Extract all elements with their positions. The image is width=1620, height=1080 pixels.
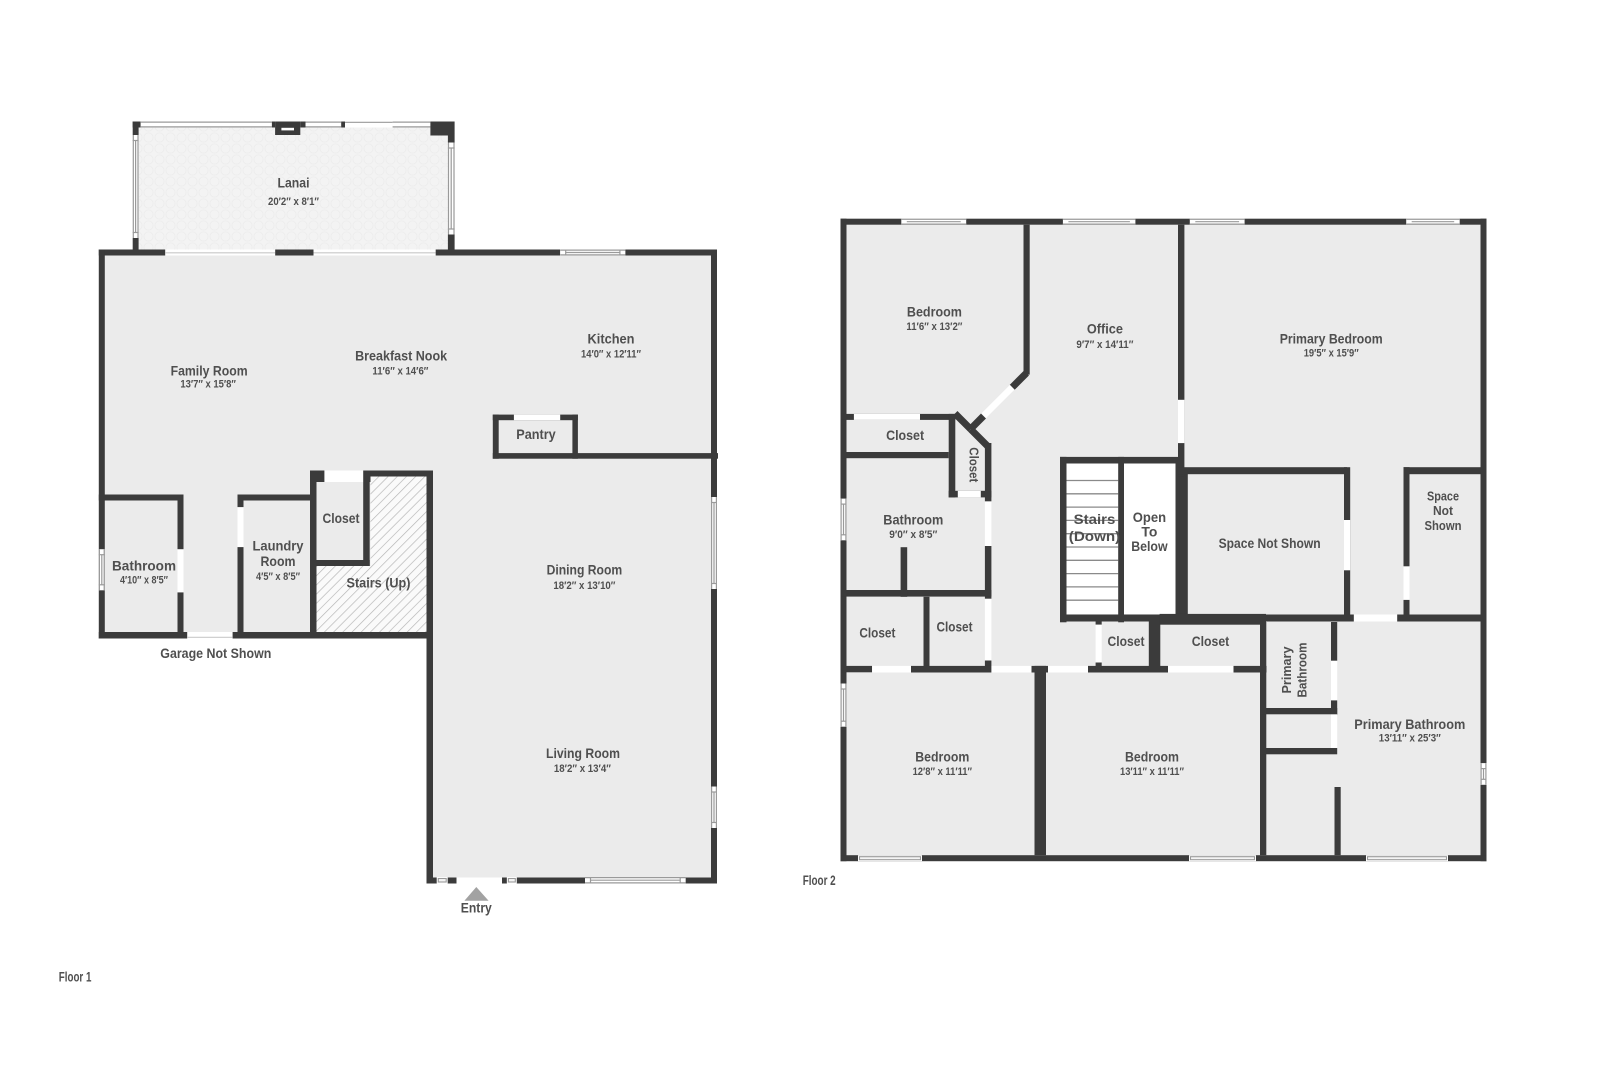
svg-text:Closet: Closet [937, 620, 973, 635]
svg-text:Lanai: Lanai [278, 174, 310, 190]
svg-text:Stairs: Stairs [1074, 511, 1116, 527]
svg-text:Floor 2: Floor 2 [803, 872, 836, 888]
svg-text:Not: Not [1433, 503, 1454, 518]
svg-text:Family Room: Family Room [171, 362, 248, 378]
svg-text:Primary Bathroom: Primary Bathroom [1354, 716, 1465, 732]
svg-text:Below: Below [1131, 539, 1168, 554]
svg-text:Primary Bedroom: Primary Bedroom [1280, 330, 1383, 346]
svg-text:Garage Not Shown: Garage Not Shown [160, 645, 271, 661]
svg-text:13′7″ x 15′8″: 13′7″ x 15′8″ [180, 379, 236, 391]
svg-text:Room: Room [261, 553, 296, 569]
svg-text:Office: Office [1087, 321, 1123, 337]
svg-text:Stairs (Up): Stairs (Up) [347, 575, 411, 591]
svg-text:Pantry: Pantry [516, 426, 556, 442]
svg-text:Bathroom: Bathroom [883, 512, 943, 528]
svg-text:20′2″ x 8′1″: 20′2″ x 8′1″ [268, 196, 320, 208]
svg-text:Living Room: Living Room [546, 745, 620, 761]
svg-text:Closet: Closet [966, 447, 980, 483]
svg-text:Closet: Closet [323, 510, 360, 526]
svg-text:Shown: Shown [1425, 518, 1462, 533]
svg-text:To: To [1141, 525, 1157, 540]
svg-text:Primary: Primary [1280, 646, 1294, 693]
svg-text:Bedroom: Bedroom [915, 749, 969, 765]
svg-text:Bedroom: Bedroom [907, 303, 962, 319]
svg-text:13′11″ x 25′3″: 13′11″ x 25′3″ [1379, 733, 1442, 745]
svg-text:18′2″ x 13′10″: 18′2″ x 13′10″ [553, 580, 616, 592]
svg-text:Entry: Entry [461, 900, 492, 916]
svg-text:Space Not Shown: Space Not Shown [1219, 535, 1321, 551]
svg-text:Floor 1: Floor 1 [59, 969, 92, 985]
svg-text:19′5″ x 15′9″: 19′5″ x 15′9″ [1304, 347, 1360, 359]
svg-text:4′10″ x 8′5″: 4′10″ x 8′5″ [120, 575, 169, 587]
svg-text:18′2″ x 13′4″: 18′2″ x 13′4″ [554, 763, 612, 775]
svg-text:Closet: Closet [1192, 633, 1230, 649]
svg-text:14′0″ x 12′11″: 14′0″ x 12′11″ [581, 348, 642, 360]
svg-text:Breakfast Nook: Breakfast Nook [355, 347, 447, 363]
svg-text:Closet: Closet [859, 626, 895, 641]
svg-text:Bathroom: Bathroom [112, 558, 176, 574]
svg-text:12′8″ x 11′11″: 12′8″ x 11′11″ [913, 766, 973, 778]
svg-text:Space: Space [1427, 489, 1459, 504]
svg-text:Open: Open [1133, 510, 1166, 525]
svg-text:4′5″ x 8′5″: 4′5″ x 8′5″ [256, 571, 301, 583]
svg-text:Kitchen: Kitchen [588, 331, 635, 347]
svg-text:Closet: Closet [886, 427, 924, 443]
svg-text:Bathroom: Bathroom [1296, 643, 1310, 698]
svg-text:11′6″ x 14′6″: 11′6″ x 14′6″ [372, 366, 429, 378]
svg-text:Laundry: Laundry [253, 538, 304, 554]
svg-text:Dining Room: Dining Room [547, 562, 623, 578]
svg-text:Closet: Closet [1108, 634, 1145, 649]
svg-text:9′7″ x 14′11″: 9′7″ x 14′11″ [1076, 339, 1134, 351]
svg-text:11′6″ x 13′2″: 11′6″ x 13′2″ [906, 321, 963, 333]
svg-text:(Down): (Down) [1069, 528, 1120, 544]
svg-text:9′0″ x 8′5″: 9′0″ x 8′5″ [889, 529, 938, 541]
svg-text:Bedroom: Bedroom [1125, 749, 1179, 765]
svg-text:13′11″ x 11′11″: 13′11″ x 11′11″ [1120, 766, 1185, 778]
